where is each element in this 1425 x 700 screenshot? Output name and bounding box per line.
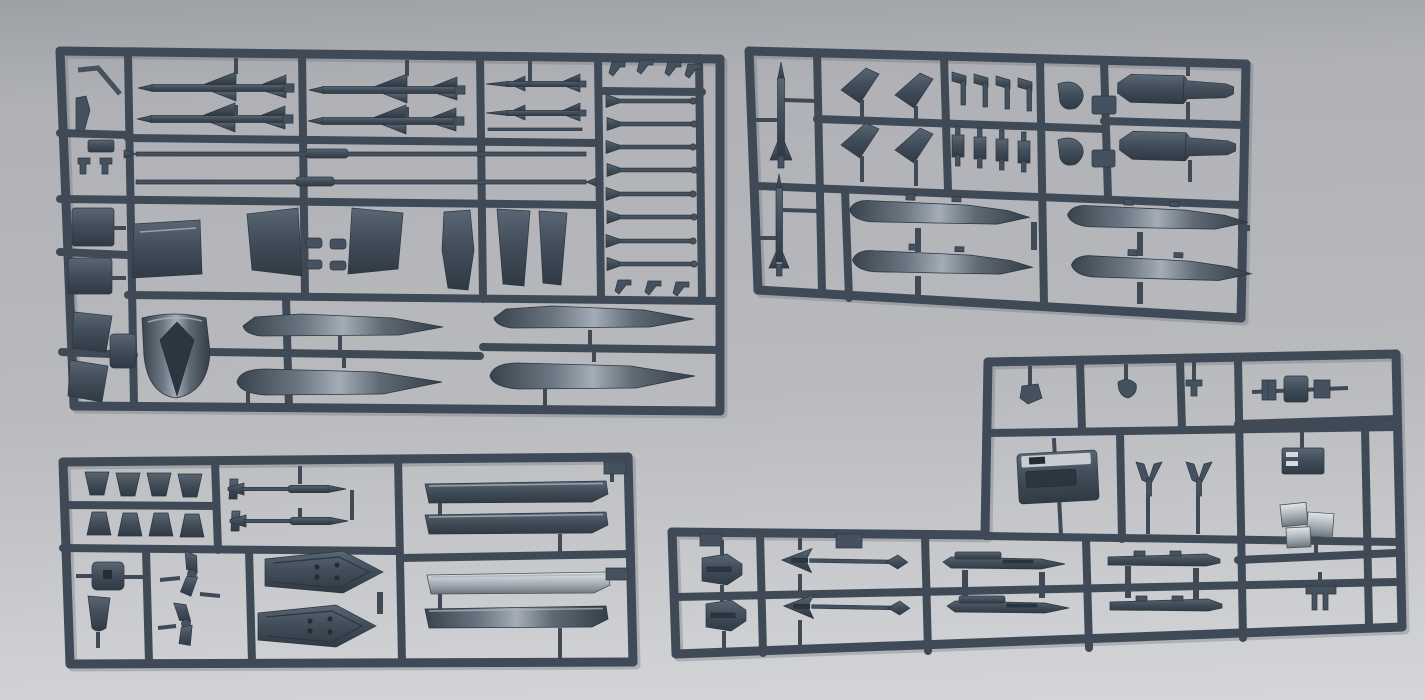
launcher-rail [427, 572, 610, 594]
hub-block [76, 562, 146, 590]
flared-launch-rail-rod [607, 118, 697, 131]
hook-clip [673, 282, 689, 296]
pylon-plank [1108, 551, 1220, 566]
thin-rod [488, 128, 582, 131]
trapezoid-fin [87, 512, 111, 535]
drop-tank-half [852, 242, 1033, 277]
flag-finlet [1018, 78, 1032, 111]
runner-tab [604, 462, 626, 474]
drop-tank-half [237, 369, 442, 395]
launcher-rail [425, 481, 608, 503]
curved-fairing [1058, 138, 1083, 165]
bone-finlet [952, 126, 964, 166]
bone-finlet [1018, 132, 1030, 172]
hook-clip [637, 60, 653, 74]
flared-launch-rail-rod [606, 235, 696, 248]
bent-refueling-probe [76, 68, 120, 132]
pylon-block [1092, 96, 1116, 114]
hook-clip [615, 280, 631, 294]
flared-launch-rail-rod [606, 188, 696, 201]
tail-blade [88, 596, 110, 648]
finned-rocket [228, 479, 346, 499]
small-leg-bracket [1306, 572, 1336, 610]
clamp-piece [78, 158, 112, 174]
launcher-rail [425, 512, 608, 534]
small-detail-part [1118, 364, 1136, 398]
runner-tab [700, 534, 722, 546]
swept-wing-fin [348, 208, 403, 274]
sprue-bottom-left [63, 457, 636, 667]
hook-clip [645, 281, 661, 295]
arrowhead-fin [895, 73, 933, 108]
flared-launch-rail-rod [606, 141, 696, 154]
intake-scoop [142, 314, 210, 398]
pylon-block [1092, 150, 1115, 167]
small-block [68, 258, 112, 294]
sparrow-missile-half [309, 74, 465, 103]
sprue-top-left [60, 51, 723, 414]
drop-tank-half [1071, 247, 1252, 284]
arrowhead-fin [841, 68, 879, 103]
long-probe-rod [136, 177, 596, 186]
curved-fairing [1058, 82, 1083, 109]
ramp-plate [539, 211, 567, 285]
pylon-plank [1110, 596, 1222, 611]
flared-launch-rail-rod [607, 211, 697, 224]
hook-clip [665, 62, 681, 76]
sprue-scene [0, 0, 1425, 700]
small-block [110, 334, 136, 368]
bomb-body [1117, 74, 1234, 105]
flag-finlet [996, 76, 1010, 109]
small-block [72, 208, 114, 246]
y-bracket [1186, 462, 1212, 496]
finned-rocket [230, 511, 348, 531]
arrow-rail-shoe [265, 551, 383, 593]
sprue-top-right [749, 51, 1252, 321]
trapezoid-fin [180, 514, 204, 537]
hook-clip [609, 62, 625, 76]
slender-missile-body [770, 62, 792, 168]
small-detail-part [1020, 366, 1042, 404]
bomb-body [1119, 131, 1236, 162]
trapezoid-fin [178, 474, 202, 497]
sidewinder-missile-half [486, 74, 586, 92]
runner-tab [606, 568, 628, 580]
small-bar [88, 140, 114, 152]
swept-wing-fin [247, 208, 302, 276]
arrowhead-fin [895, 128, 933, 163]
runner-tab [836, 534, 862, 548]
arrow-rail-shoe [258, 605, 376, 647]
launcher-rail [425, 606, 608, 628]
winged-missile-body [943, 552, 1065, 569]
linkage-assembly [1252, 376, 1348, 402]
sparrow-missile-half [308, 105, 464, 134]
access-panel-plate [132, 220, 202, 278]
sidewinder-missile-half [486, 103, 586, 121]
drop-tank-half [490, 363, 695, 389]
y-bracket [1136, 462, 1162, 496]
long-probe-rod [124, 149, 586, 158]
sparrow-missile-half [138, 72, 294, 101]
blade-fin [68, 360, 108, 402]
trapezoid-fin [149, 513, 173, 536]
flag-finlet [974, 74, 988, 107]
sprue-bottom-right [672, 354, 1405, 657]
blade-fin [72, 312, 112, 352]
bone-finlet [996, 130, 1008, 170]
fin-cap [702, 554, 742, 585]
flared-launch-rail-rod [607, 258, 697, 271]
drop-tank-half [494, 306, 694, 328]
trapezoid-fin [85, 472, 109, 495]
side-slab [442, 210, 474, 290]
photo-of-model-sprues [0, 0, 1425, 700]
trapezoid-fin [118, 513, 142, 536]
ramp-plate [497, 209, 530, 286]
flag-finlet [952, 72, 966, 105]
trapezoid-fin [116, 473, 140, 496]
bone-finlet [974, 128, 986, 168]
small-detail-part [1186, 362, 1202, 396]
arrowhead-fin [841, 123, 879, 158]
flared-launch-rail-rod [607, 164, 697, 177]
equipment-pod [1016, 436, 1101, 536]
trapezoid-fin [147, 473, 171, 496]
bright-clip-cluster [1280, 502, 1334, 556]
joined-fin-pair [179, 551, 201, 597]
flared-launch-rail-rod [606, 95, 696, 108]
winged-missile-body [947, 596, 1069, 613]
slotted-bracket [1282, 428, 1324, 474]
drop-tank-half [243, 314, 443, 336]
wing-coupler [306, 238, 346, 270]
joined-fin-pair [174, 601, 195, 646]
sparrow-missile-half [137, 103, 293, 132]
dart-missile [782, 548, 908, 574]
fin-cap [706, 600, 746, 631]
